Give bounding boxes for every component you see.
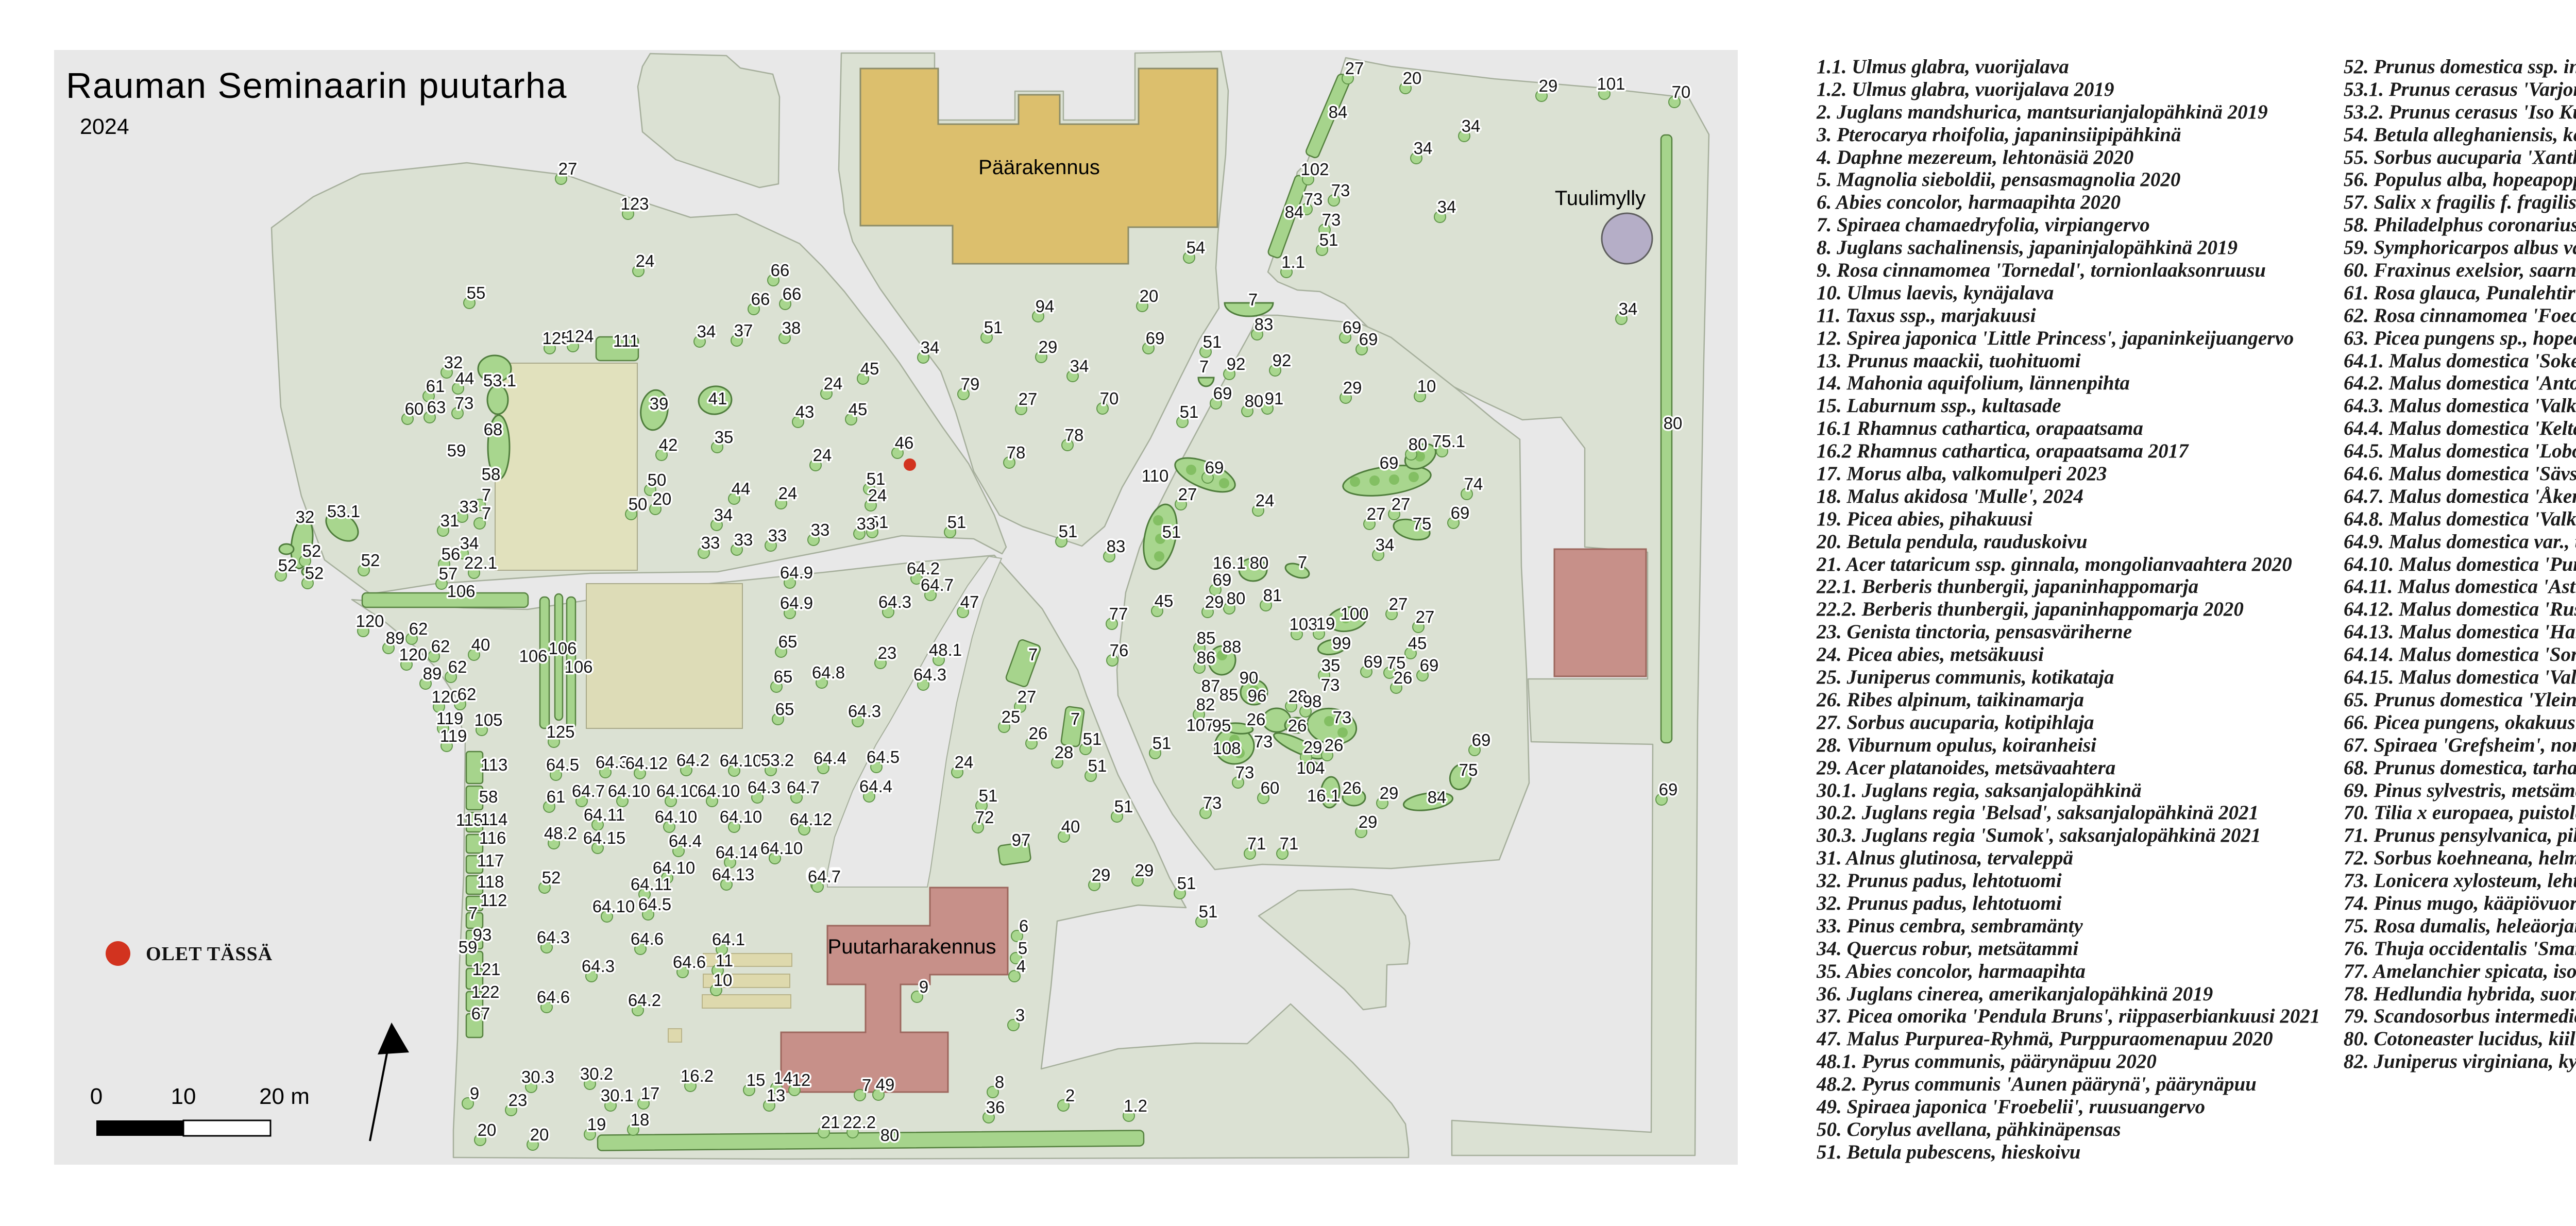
svg-text:51: 51 [984,318,1003,337]
svg-text:64.9: 64.9 [780,593,813,612]
svg-text:42: 42 [659,435,678,454]
svg-text:62: 62 [448,657,467,676]
svg-text:33: 33 [768,526,787,545]
svg-text:OLET TÄSSÄ: OLET TÄSSÄ [146,943,273,965]
svg-text:33: 33 [734,530,753,549]
svg-text:64.3: 64.3 [913,665,946,684]
svg-text:25: 25 [1002,707,1021,726]
svg-text:71: 71 [1247,834,1266,853]
svg-text:41: 41 [708,389,727,408]
svg-text:120: 120 [431,687,460,706]
svg-text:75: 75 [1413,514,1432,533]
svg-text:50: 50 [629,495,648,514]
svg-text:33: 33 [857,514,876,533]
svg-text:64.10: 64.10 [760,839,803,858]
svg-text:50: 50 [648,470,667,489]
svg-text:38: 38 [782,318,801,337]
svg-text:7: 7 [1071,709,1080,728]
svg-text:27: 27 [1345,59,1364,78]
svg-text:79: 79 [961,374,980,394]
svg-text:34: 34 [1619,299,1638,318]
svg-text:73: 73 [1203,793,1222,812]
svg-text:10: 10 [1417,377,1436,396]
svg-text:29: 29 [1135,861,1154,880]
svg-text:70: 70 [1100,389,1119,408]
svg-text:102: 102 [1300,160,1329,179]
svg-text:23: 23 [509,1091,528,1110]
svg-text:7: 7 [1028,645,1038,664]
svg-text:1.2: 1.2 [1124,1096,1147,1115]
svg-text:64.9: 64.9 [780,563,813,582]
svg-text:34: 34 [697,322,716,341]
svg-text:19: 19 [587,1115,606,1134]
svg-text:37: 37 [734,321,753,340]
svg-text:10: 10 [714,970,733,990]
svg-text:106: 106 [548,639,577,658]
svg-text:63: 63 [427,398,446,417]
svg-text:35: 35 [1321,656,1341,675]
svg-text:47: 47 [960,592,979,611]
svg-text:61: 61 [426,377,445,396]
svg-text:66: 66 [783,284,802,303]
svg-text:69: 69 [1451,503,1470,522]
svg-text:105: 105 [474,710,502,729]
svg-text:11: 11 [716,951,733,970]
svg-text:26: 26 [1343,778,1362,797]
svg-text:7: 7 [482,504,491,523]
svg-text:119: 119 [436,709,464,728]
svg-text:97: 97 [1012,830,1031,849]
svg-text:12: 12 [792,1070,811,1089]
svg-text:68: 68 [484,420,503,439]
svg-text:59: 59 [447,441,466,460]
svg-text:115: 115 [456,810,483,829]
svg-text:16.1: 16.1 [1213,553,1246,572]
svg-text:29: 29 [1539,76,1558,95]
svg-text:72: 72 [975,808,994,827]
svg-text:69: 69 [1472,730,1491,750]
svg-text:69: 69 [1359,330,1378,349]
svg-text:7: 7 [862,1076,871,1095]
svg-text:24: 24 [636,251,655,270]
svg-text:29: 29 [1092,865,1111,884]
svg-text:24: 24 [868,486,887,505]
svg-text:62: 62 [409,619,428,638]
svg-text:27: 27 [1392,495,1411,514]
svg-text:101: 101 [1597,74,1625,93]
svg-text:52: 52 [305,564,324,583]
svg-text:29: 29 [1380,784,1399,803]
svg-text:26: 26 [1288,716,1307,735]
svg-text:86: 86 [1197,648,1216,667]
svg-text:64.12: 64.12 [625,754,668,773]
svg-text:51: 51 [1319,230,1338,249]
svg-text:22.2: 22.2 [843,1113,876,1132]
svg-text:69: 69 [1659,780,1678,799]
svg-text:69: 69 [1146,329,1165,348]
svg-text:73: 73 [1333,708,1352,727]
svg-text:27: 27 [1019,389,1038,408]
svg-text:64.2: 64.2 [676,751,709,770]
svg-text:51: 51 [1114,797,1133,816]
svg-text:51: 51 [1162,522,1181,541]
svg-text:51: 51 [947,513,967,532]
svg-text:64.14: 64.14 [716,843,758,862]
svg-text:64.3: 64.3 [878,592,911,611]
svg-text:18: 18 [631,1110,650,1129]
svg-text:2024: 2024 [80,114,129,139]
svg-text:20: 20 [653,489,672,508]
svg-text:48.2: 48.2 [544,824,577,843]
svg-text:64.5: 64.5 [546,755,579,774]
svg-text:51: 51 [1153,734,1172,753]
svg-text:114: 114 [481,810,508,829]
svg-text:55: 55 [467,283,486,302]
svg-text:52: 52 [542,868,561,887]
svg-text:59: 59 [459,938,478,957]
svg-text:29: 29 [1359,812,1378,831]
svg-text:73: 73 [1304,190,1323,209]
svg-text:33: 33 [811,520,830,539]
svg-text:23: 23 [878,643,897,662]
svg-text:83: 83 [1255,315,1274,334]
svg-text:121: 121 [472,960,500,979]
svg-text:107: 107 [1186,716,1214,735]
svg-text:45: 45 [1408,634,1427,653]
svg-text:64.3: 64.3 [596,753,629,772]
svg-text:108: 108 [1212,739,1241,758]
svg-text:24: 24 [955,753,974,772]
svg-text:24: 24 [778,484,798,503]
svg-text:116: 116 [479,828,506,847]
svg-text:14: 14 [774,1068,793,1087]
svg-text:20 m: 20 m [259,1084,310,1109]
svg-text:53.2: 53.2 [761,751,794,770]
svg-text:64.4: 64.4 [669,831,702,850]
svg-text:69: 69 [1213,384,1232,403]
svg-text:10: 10 [171,1084,196,1109]
svg-text:100: 100 [1340,604,1368,623]
svg-text:43: 43 [795,402,815,421]
svg-text:26: 26 [1247,710,1266,729]
svg-text:26: 26 [1394,668,1413,687]
svg-text:34: 34 [1462,116,1481,135]
svg-text:64.7: 64.7 [787,778,820,797]
svg-text:20: 20 [530,1125,549,1144]
svg-text:80: 80 [1250,553,1269,572]
svg-text:62: 62 [431,637,450,656]
svg-text:7: 7 [482,485,491,504]
svg-text:73: 73 [1235,763,1255,782]
svg-text:2: 2 [1065,1086,1075,1105]
svg-text:22.1: 22.1 [464,553,497,572]
svg-text:64.6: 64.6 [673,952,706,972]
svg-text:20: 20 [478,1120,497,1139]
svg-text:92: 92 [1227,354,1246,373]
svg-text:51: 51 [1199,902,1218,921]
svg-text:103: 103 [1289,615,1317,634]
svg-text:64.10: 64.10 [608,781,651,801]
svg-text:40: 40 [1061,817,1080,836]
svg-text:76: 76 [1110,641,1129,660]
svg-text:27: 27 [558,159,578,178]
svg-text:52: 52 [278,556,297,575]
svg-text:80: 80 [880,1126,900,1145]
svg-text:51: 51 [1083,729,1102,748]
svg-text:66: 66 [771,261,790,280]
svg-text:39: 39 [650,394,669,413]
svg-text:34: 34 [714,505,733,524]
svg-text:65: 65 [774,667,793,686]
svg-text:73: 73 [1321,675,1340,694]
svg-text:64.7: 64.7 [572,781,605,801]
svg-text:78: 78 [1007,443,1026,462]
svg-text:99: 99 [1332,634,1351,653]
svg-text:34: 34 [921,338,940,357]
svg-text:104: 104 [1296,758,1325,777]
svg-text:64.10: 64.10 [656,781,699,801]
svg-text:82: 82 [1196,695,1215,714]
svg-text:67: 67 [471,1004,490,1023]
svg-text:64.10: 64.10 [592,897,635,916]
svg-text:91: 91 [1265,389,1284,408]
svg-text:7: 7 [1199,357,1209,376]
svg-text:84: 84 [1329,103,1348,122]
svg-text:24: 24 [813,446,832,465]
svg-text:64.3: 64.3 [582,957,615,976]
svg-text:48.1: 48.1 [929,640,962,659]
svg-text:65: 65 [775,700,794,719]
svg-text:16.1: 16.1 [1307,786,1340,805]
svg-text:85: 85 [1219,685,1239,704]
svg-text:34: 34 [1376,535,1395,554]
svg-text:20: 20 [1140,286,1159,305]
svg-text:106: 106 [564,657,592,676]
svg-text:9: 9 [470,1084,479,1103]
svg-text:120: 120 [355,611,384,631]
svg-text:27: 27 [1367,504,1386,523]
svg-text:36: 36 [986,1098,1005,1117]
svg-text:60: 60 [1261,778,1280,797]
svg-text:5: 5 [1018,939,1027,958]
svg-text:73: 73 [1322,210,1341,229]
svg-text:69: 69 [1205,458,1224,477]
svg-text:95: 95 [1212,716,1231,735]
svg-text:52: 52 [302,541,321,560]
svg-text:64.11: 64.11 [584,805,625,824]
svg-text:51: 51 [1177,874,1196,893]
svg-text:80: 80 [1227,589,1246,608]
svg-text:30.2: 30.2 [580,1064,613,1083]
svg-text:64.6: 64.6 [537,987,570,1007]
svg-text:64.4: 64.4 [859,777,892,796]
svg-text:64.4: 64.4 [814,748,846,768]
svg-text:88: 88 [1223,637,1242,656]
svg-text:64.1: 64.1 [712,930,745,949]
svg-text:52: 52 [361,551,380,570]
svg-text:64.7: 64.7 [921,575,954,594]
svg-text:26: 26 [1325,736,1344,755]
svg-text:17: 17 [641,1084,660,1103]
svg-text:0: 0 [90,1084,103,1109]
svg-text:106: 106 [447,582,475,601]
svg-text:31: 31 [440,511,460,530]
svg-text:32: 32 [296,507,315,526]
svg-text:51: 51 [867,469,886,488]
svg-text:44: 44 [732,479,751,498]
svg-text:27: 27 [1018,687,1037,706]
svg-text:34: 34 [1437,197,1456,216]
svg-text:64.5: 64.5 [638,895,671,914]
svg-text:51: 51 [1088,756,1107,775]
svg-text:33: 33 [460,497,479,516]
svg-text:83: 83 [1107,537,1126,556]
svg-text:65: 65 [778,632,798,651]
svg-text:34: 34 [1070,356,1089,376]
svg-text:29: 29 [1205,592,1224,611]
svg-text:75.1: 75.1 [1432,432,1465,451]
svg-text:27: 27 [1178,485,1197,504]
svg-text:34: 34 [460,534,479,553]
svg-text:64.2: 64.2 [628,991,661,1010]
svg-text:119: 119 [440,726,467,745]
svg-text:28: 28 [1055,743,1074,762]
svg-text:21: 21 [821,1113,840,1132]
svg-text:64.6: 64.6 [631,929,664,948]
svg-text:69: 69 [1420,656,1439,675]
svg-text:53.1: 53.1 [483,371,516,390]
svg-text:112: 112 [480,891,507,910]
svg-text:71: 71 [1280,834,1299,853]
svg-text:45: 45 [860,359,879,378]
svg-text:64.8: 64.8 [812,663,845,682]
svg-text:80: 80 [1245,391,1264,411]
svg-text:51: 51 [1059,522,1078,541]
svg-text:56: 56 [442,544,461,564]
svg-text:19: 19 [1316,614,1335,633]
svg-text:84: 84 [1285,202,1304,222]
svg-text:64.15: 64.15 [583,828,626,847]
svg-text:Puutarharakennus: Puutarharakennus [828,935,996,958]
svg-text:29: 29 [1039,337,1058,356]
svg-text:106: 106 [519,646,547,666]
svg-text:117: 117 [477,851,504,870]
svg-text:64.3: 64.3 [748,778,781,797]
svg-text:Päärakennus: Päärakennus [978,156,1100,179]
svg-text:89: 89 [423,664,442,683]
svg-text:80: 80 [1409,435,1428,454]
svg-text:87: 87 [1201,676,1221,695]
svg-text:64.10: 64.10 [698,781,740,801]
svg-text:64.3: 64.3 [848,702,881,721]
svg-text:73: 73 [455,394,474,413]
svg-text:51: 51 [1203,332,1222,351]
svg-text:113: 113 [481,755,508,774]
svg-text:75: 75 [1459,760,1478,779]
svg-text:64.10: 64.10 [720,751,762,770]
svg-text:24: 24 [824,374,843,393]
svg-text:110: 110 [1142,466,1169,485]
svg-text:122: 122 [471,982,499,1001]
svg-text:45: 45 [849,400,868,419]
svg-text:46: 46 [895,433,914,452]
svg-text:30.3: 30.3 [521,1067,554,1086]
svg-text:7: 7 [468,904,478,923]
svg-text:94: 94 [1036,297,1055,316]
svg-text:33: 33 [701,533,720,552]
svg-text:58: 58 [479,787,498,806]
svg-text:73: 73 [1331,181,1350,200]
svg-text:69: 69 [1213,570,1232,589]
svg-text:7: 7 [1298,553,1307,572]
svg-text:64.10: 64.10 [720,807,762,826]
svg-text:6: 6 [1019,916,1028,935]
svg-text:35: 35 [715,428,734,447]
svg-text:123: 123 [620,194,649,213]
svg-text:84: 84 [1428,788,1447,807]
svg-text:92: 92 [1273,351,1292,370]
svg-text:111: 111 [613,331,639,350]
svg-text:64.11: 64.11 [631,875,672,894]
svg-text:120: 120 [399,645,427,664]
svg-text:4: 4 [1016,957,1026,976]
svg-text:70: 70 [1672,82,1691,101]
svg-text:73: 73 [1254,732,1273,751]
svg-text:13: 13 [767,1086,786,1105]
svg-text:7: 7 [1248,290,1258,309]
svg-text:51: 51 [1180,402,1199,421]
svg-text:124: 124 [565,327,594,346]
svg-text:34: 34 [1414,139,1433,158]
svg-text:9: 9 [919,977,928,996]
svg-text:40: 40 [471,635,490,654]
svg-text:30.1: 30.1 [601,1086,634,1105]
svg-text:64.3: 64.3 [537,928,570,947]
svg-text:27: 27 [1389,594,1408,614]
svg-text:57: 57 [439,564,458,583]
svg-text:64.10: 64.10 [655,807,698,826]
svg-text:29: 29 [1303,738,1323,757]
svg-text:16.2: 16.2 [681,1066,714,1085]
svg-text:24: 24 [1256,491,1275,510]
svg-text:60: 60 [405,399,424,418]
svg-text:118: 118 [477,872,504,891]
svg-text:74: 74 [1464,474,1483,493]
svg-text:20: 20 [1403,69,1422,88]
svg-text:69: 69 [1364,652,1383,671]
svg-text:96: 96 [1248,686,1267,705]
svg-text:26: 26 [1029,724,1048,743]
svg-text:Rauman Seminaarin puutarha: Rauman Seminaarin puutarha [66,65,567,106]
svg-text:85: 85 [1197,628,1216,648]
svg-text:64.5: 64.5 [867,747,900,767]
svg-text:44: 44 [455,369,474,388]
svg-text:66: 66 [751,290,770,309]
svg-text:98: 98 [1303,692,1322,711]
svg-text:58: 58 [482,465,501,484]
svg-text:80: 80 [1664,414,1683,433]
svg-text:3: 3 [1015,1006,1025,1025]
svg-text:27: 27 [1416,607,1435,626]
svg-text:Tuulimylly: Tuulimylly [1555,187,1646,210]
svg-text:78: 78 [1065,425,1084,445]
svg-text:49: 49 [876,1075,895,1094]
svg-text:1.1: 1.1 [1281,252,1305,271]
svg-text:81: 81 [1263,586,1282,605]
svg-text:8: 8 [995,1072,1004,1092]
svg-text:77: 77 [1109,604,1128,623]
svg-text:45: 45 [1155,591,1174,610]
